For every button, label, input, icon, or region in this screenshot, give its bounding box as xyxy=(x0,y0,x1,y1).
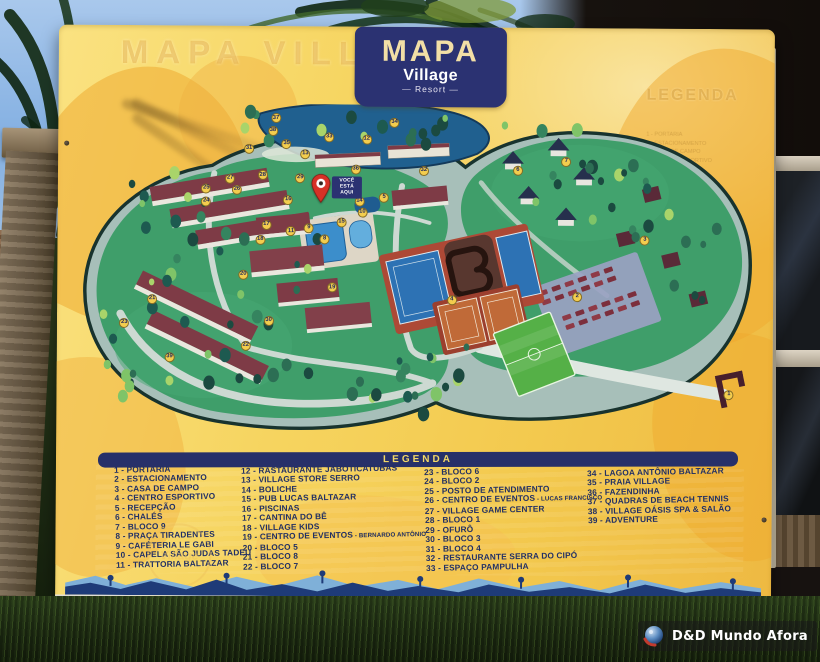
map-marker-32: 32 xyxy=(419,166,429,176)
brand-subtitle: — Resort — xyxy=(355,84,507,95)
building-beam xyxy=(776,156,820,171)
legend-item-sublabel: - BERNARDO ANTÔNIO xyxy=(353,531,426,540)
map-marker-4: 4 xyxy=(447,295,457,305)
photo-of-resort-map-sign: MAPA VILLAGE LEGENDA 1 - PORTARIA2 - EST… xyxy=(0,0,820,662)
map-marker-30: 30 xyxy=(264,316,274,326)
map-illustration: 1234567891011121314151617181920212223242… xyxy=(64,103,768,446)
page-title: MAPA xyxy=(355,37,507,68)
map-marker-6: 6 xyxy=(513,165,523,175)
legend-column-3: 23 - BLOCO 624 - BLOCO 225 - POSTO DE AT… xyxy=(424,465,584,573)
map-marker-17: 17 xyxy=(261,220,271,230)
map-marker-39: 39 xyxy=(164,352,174,362)
bolt xyxy=(762,517,767,522)
building-beam xyxy=(776,350,820,367)
map-marker-15: 15 xyxy=(336,217,346,227)
legend-column-4: 34 - LAGOA ANTÔNIO BALTAZAR35 - PRAIA VI… xyxy=(587,466,760,526)
map-marker-26: 26 xyxy=(232,185,242,195)
map-marker-21: 21 xyxy=(147,294,157,304)
building-window xyxy=(776,367,820,515)
you-are-here-label: VOCÊESTÁAQUI xyxy=(332,176,362,198)
ghost-village-text: Village xyxy=(160,548,198,562)
map-marker-12: 12 xyxy=(362,134,372,144)
sign-header-badge: MAPA Village — Resort — xyxy=(354,27,507,108)
map-marker-9: 9 xyxy=(304,223,314,233)
background-wood xyxy=(776,515,820,567)
watermark-text: D&D Mundo Afora xyxy=(672,629,808,644)
photo-watermark: D&D Mundo Afora xyxy=(638,621,817,651)
map-artwork xyxy=(64,103,768,446)
legend-column-2: 12 - RASTAURANTE JABOTICATUBAS13 - VILLA… xyxy=(241,463,421,572)
ghost-legend-title: LEGENDA xyxy=(646,87,772,106)
brand-name: Village xyxy=(355,67,507,85)
map-marker-33: 33 xyxy=(324,132,334,142)
you-are-here-pin xyxy=(311,173,331,204)
map-marker-18: 18 xyxy=(255,235,265,245)
map-marker-36: 36 xyxy=(351,164,361,174)
map-marker-24: 24 xyxy=(201,196,211,206)
building-window xyxy=(776,171,820,350)
watermark-logo-icon xyxy=(642,624,666,648)
map-marker-38: 38 xyxy=(268,126,278,136)
map-marker-10: 10 xyxy=(357,208,367,218)
map-marker-20: 20 xyxy=(238,270,248,280)
resort-map-sign-board: MAPA VILLAGE LEGENDA 1 - PORTARIA2 - EST… xyxy=(55,25,775,608)
